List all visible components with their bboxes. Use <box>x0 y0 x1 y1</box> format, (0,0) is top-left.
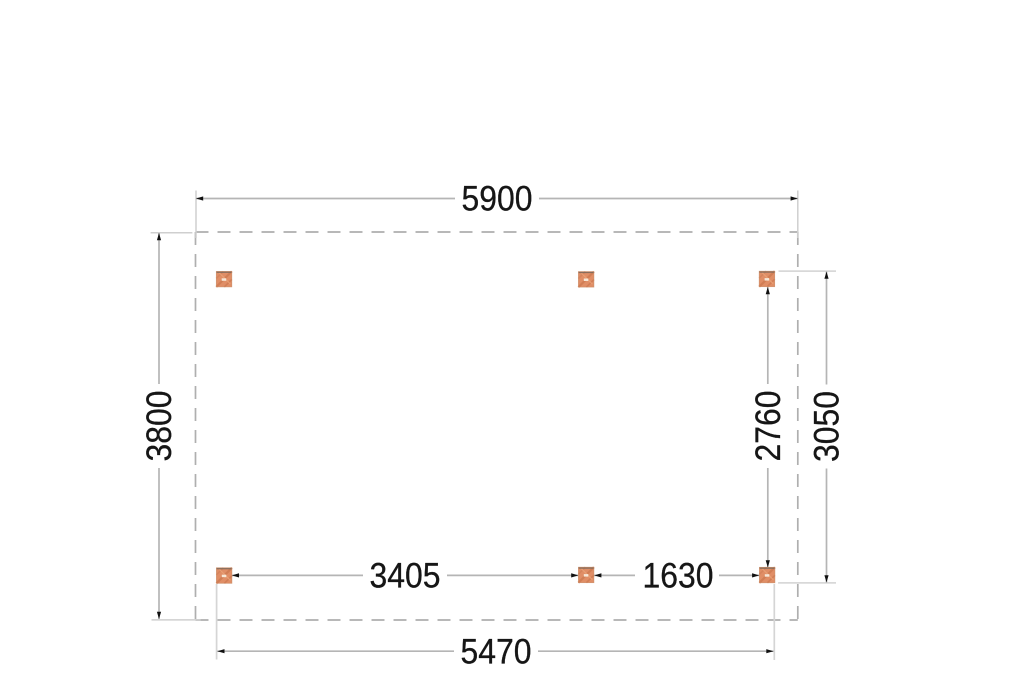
svg-text:3800: 3800 <box>139 391 179 462</box>
svg-text:5470: 5470 <box>461 631 532 671</box>
svg-text:3405: 3405 <box>370 556 441 596</box>
svg-text:3050: 3050 <box>807 391 847 462</box>
svg-text:5900: 5900 <box>462 179 533 219</box>
svg-text:2760: 2760 <box>748 391 788 462</box>
svg-text:1630: 1630 <box>643 556 714 596</box>
